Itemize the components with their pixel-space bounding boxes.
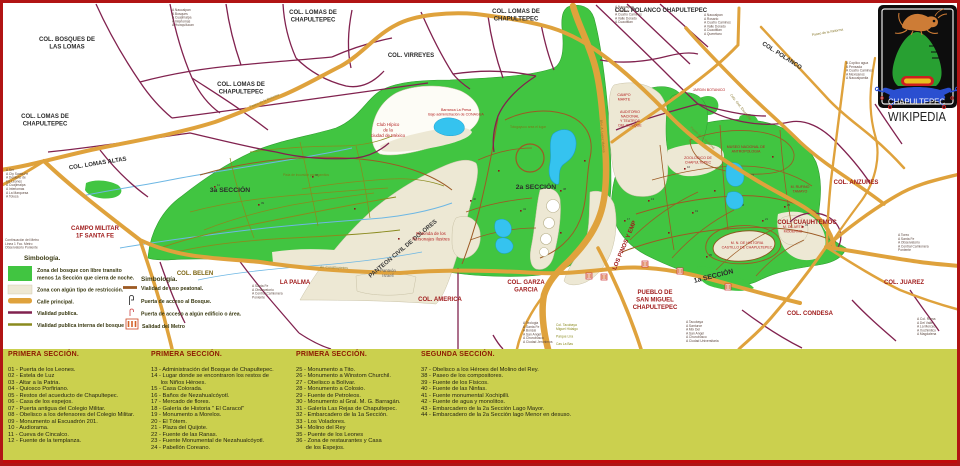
svg-text:A Naucalpantla: A Naucalpantla: [846, 76, 868, 80]
svg-text:COL. BOSQUES DE: COL. BOSQUES DE: [39, 37, 95, 43]
svg-text:Vialidad publica interna del b: Vialidad publica interna del bosque: [37, 323, 124, 329]
svg-text:Simbología.: Simbología.: [141, 276, 177, 283]
svg-text:CHAPULTEPEC: CHAPULTEPEC: [291, 18, 336, 24]
svg-text:MODERNO: MODERNO: [784, 230, 803, 234]
svg-text:2a SECCIÓN: 2a SECCIÓN: [516, 182, 557, 191]
svg-text:Puerta de acceso a algún edifi: Puerta de acceso a algún edificio o área…: [141, 312, 242, 318]
svg-text:A Toluca: A Toluca: [6, 195, 19, 199]
svg-text:Vialidad de uso peatonal.: Vialidad de uso peatonal.: [141, 286, 204, 292]
svg-text:Israelí: Israelí: [382, 273, 394, 278]
svg-text:19: 19: [695, 209, 699, 213]
svg-text:COL. LOMAS DE: COL. LOMAS DE: [21, 114, 69, 120]
svg-text:Rotonda de los: Rotonda de los: [416, 231, 446, 236]
svg-text:1F SANTA FE: 1F SANTA FE: [76, 234, 114, 240]
svg-text:A Magdalena: A Magdalena: [917, 332, 936, 336]
svg-text:Salidad del Metro: Salidad del Metro: [142, 324, 185, 330]
svg-text:Calle principal.: Calle principal.: [37, 300, 74, 306]
svg-text:PUEBLO DE: PUEBLO DE: [637, 290, 672, 296]
svg-text:16: 16: [687, 165, 691, 169]
svg-text:Parque Lira: Parque Lira: [556, 334, 573, 338]
svg-text:COL. VIRREYES: COL. VIRREYES: [388, 53, 434, 59]
svg-text:COL. BELEN: COL. BELEN: [177, 271, 213, 277]
svg-text:Personajes Ilustres: Personajes Ilustres: [412, 237, 450, 242]
svg-text:Zona con algún tipo de restric: Zona con algún tipo de restricción.: [37, 288, 124, 294]
svg-text:COL. ANZURES: COL. ANZURES: [834, 180, 879, 186]
svg-text:21: 21: [765, 217, 769, 221]
svg-text:LAS LOMAS: LAS LOMAS: [49, 45, 84, 51]
svg-text:LA PALMA: LA PALMA: [280, 280, 311, 286]
svg-text:COL. LOMAS DE: COL. LOMAS DE: [289, 10, 337, 16]
svg-text:ANTROPOLOGIA: ANTROPOLOGIA: [732, 150, 761, 154]
svg-text:35: 35: [709, 253, 713, 257]
svg-text:M. N. DE HISTORIA: M. N. DE HISTORIA: [731, 241, 764, 245]
svg-text:COL. JUAREZ: COL. JUAREZ: [884, 280, 924, 286]
svg-text:CAMPO: CAMPO: [617, 93, 630, 97]
svg-text:17: 17: [627, 217, 631, 221]
svg-text:3a SECCIÓN: 3a SECCIÓN: [210, 185, 251, 194]
svg-text:Club Hípico: Club Hípico: [377, 122, 400, 127]
svg-text:CHAPULTEPEC: CHAPULTEPEC: [23, 122, 68, 128]
svg-text:Poniente: Poniente: [898, 248, 911, 252]
svg-text:WIKIPEDIA: WIKIPEDIA: [888, 110, 947, 124]
svg-text:09: 09: [261, 201, 265, 205]
svg-text:COL. LOMAS DE: COL. LOMAS DE: [492, 9, 540, 15]
svg-text:COL. AMERICA: COL. AMERICA: [418, 297, 462, 303]
svg-text:MARTE: MARTE: [618, 98, 631, 102]
svg-text:38: 38: [563, 187, 567, 191]
svg-text:A Huixquilucan: A Huixquilucan: [172, 23, 194, 27]
svg-text:Simbología.: Simbología.: [24, 255, 60, 262]
svg-text:A Querétaro: A Querétaro: [704, 32, 722, 36]
svg-text:DEL BOSQUE: DEL BOSQUE: [618, 124, 642, 128]
svg-text:13: 13: [651, 197, 655, 201]
svg-text:Poniente: Poniente: [252, 295, 265, 299]
svg-text:TAMAYO: TAMAYO: [793, 190, 808, 194]
svg-text:JARDIN BOTANICO: JARDIN BOTANICO: [693, 88, 726, 92]
svg-text:Barranca La Presa: Barranca La Presa: [441, 108, 471, 112]
svg-text:25: 25: [787, 203, 791, 207]
svg-text:CHAPULTEPEC: CHAPULTEPEC: [888, 97, 945, 107]
svg-text:COL. LOMAS DE: COL. LOMAS DE: [217, 82, 265, 88]
svg-text:Miguel Hidalgo: Miguel Hidalgo: [556, 327, 578, 331]
svg-text:Observatorio Poniente: Observatorio Poniente: [5, 246, 38, 250]
svg-text:Pista de incursión para gamito: Pista de incursión para gamitos: [283, 173, 329, 177]
svg-text:NACIONAL: NACIONAL: [621, 115, 639, 119]
svg-text:CHAPULTEPEC: CHAPULTEPEC: [219, 90, 264, 96]
svg-text:CASTILLO DE CHAPULTEPEC: CASTILLO DE CHAPULTEPEC: [722, 246, 773, 250]
svg-text:Totogayuco area el lugar: Totogayuco area el lugar: [510, 125, 547, 129]
svg-text:Bajo administración de CONAGUA: Bajo administración de CONAGUA: [428, 113, 484, 117]
svg-text:A Cuautitlan: A Cuautitlan: [615, 20, 633, 24]
svg-text:SAN MIGUEL: SAN MIGUEL: [636, 298, 674, 304]
svg-text:ciudad de México: ciudad de México: [371, 133, 406, 138]
svg-text:M. RUFINO: M. RUFINO: [791, 185, 810, 189]
svg-text:MUSEO NACIONAL DE: MUSEO NACIONAL DE: [727, 145, 766, 149]
svg-text:M. DE ARTE: M. DE ARTE: [783, 225, 804, 229]
svg-text:Cas La Bas: Cas La Bas: [556, 342, 573, 346]
svg-text:GARCIA: GARCIA: [514, 288, 538, 294]
svg-text:Y TEATROS: Y TEATROS: [620, 119, 641, 123]
svg-text:Vialidad publica.: Vialidad publica.: [37, 311, 78, 317]
svg-text:COL. CONDESA: COL. CONDESA: [787, 311, 834, 317]
svg-text:CAMPO MILITAR: CAMPO MILITAR: [71, 226, 120, 232]
svg-text:COL. GARZA: COL. GARZA: [507, 280, 545, 286]
svg-text:41: 41: [523, 207, 527, 211]
svg-text:CHAPULTEPEC: CHAPULTEPEC: [685, 161, 712, 165]
svg-text:A Ciudad Universitaria: A Ciudad Universitaria: [686, 339, 719, 343]
svg-text:de la: de la: [383, 128, 393, 133]
svg-text:40: 40: [473, 197, 477, 201]
svg-text:AUDITORIO: AUDITORIO: [620, 110, 640, 114]
svg-text:Zona del bosque con libre tran: Zona del bosque con libre transito: [37, 268, 122, 274]
svg-text:Puerta de acceso al Bosque.: Puerta de acceso al Bosque.: [141, 299, 212, 305]
svg-text:menos 1a Sección que cierra de: menos 1a Sección que cierra de noche.: [37, 276, 135, 282]
svg-text:A Ciudad Jeronimos: A Ciudad Jeronimos: [523, 340, 553, 344]
svg-text:ZOOLOGICO DE: ZOOLOGICO DE: [684, 156, 712, 160]
svg-text:CHAPULTEPEC: CHAPULTEPEC: [494, 17, 539, 23]
svg-text:CHAPULTEPEC: CHAPULTEPEC: [633, 305, 678, 311]
